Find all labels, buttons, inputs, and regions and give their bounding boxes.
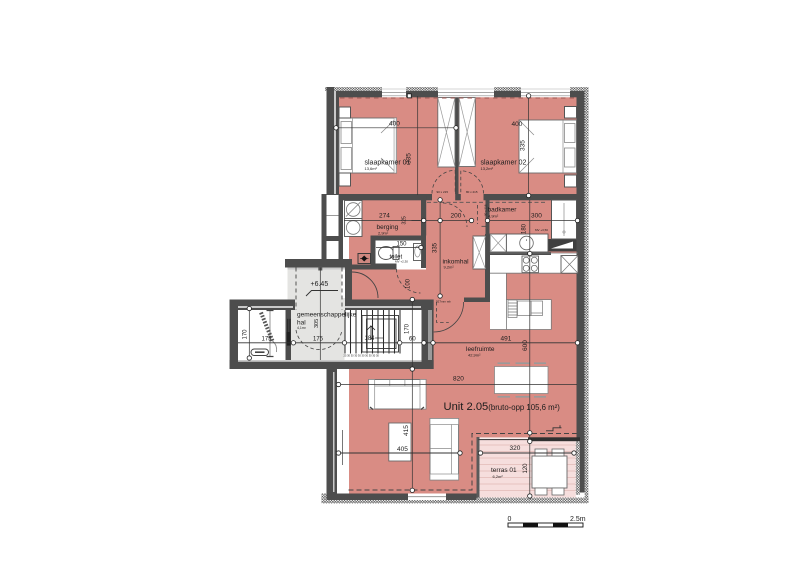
svg-text:25 30 30 30 30 30 30 30 30 30: 25 30 30 30 30 30 30 30 30 30 (344, 354, 380, 358)
svg-text:175: 175 (262, 337, 273, 343)
svg-text:+6.45: +6.45 (311, 281, 329, 288)
svg-text:335: 335 (520, 140, 527, 151)
svg-text:2,9m²: 2,9m² (378, 231, 389, 236)
svg-text:170: 170 (405, 323, 411, 334)
svg-text:274: 274 (379, 213, 390, 220)
svg-text:305: 305 (314, 319, 320, 328)
svg-text:13,6m²: 13,6m² (365, 166, 378, 171)
svg-text:terras 01: terras 01 (491, 467, 517, 474)
svg-text:150: 150 (397, 242, 408, 248)
svg-text:170: 170 (243, 329, 249, 340)
svg-text:6,2m²: 6,2m² (493, 474, 504, 479)
svg-text:335: 335 (406, 153, 413, 164)
svg-text:400: 400 (512, 121, 523, 128)
svg-text:gemeenschappelijke: gemeenschappelijke (297, 312, 357, 319)
svg-text:335: 335 (433, 242, 439, 253)
svg-text:2.5m: 2.5m (570, 516, 586, 523)
svg-text:9,2m²: 9,2m² (444, 265, 455, 270)
svg-text:13,2m²: 13,2m² (481, 166, 494, 171)
svg-text:415: 415 (403, 425, 410, 436)
svg-text:120: 120 (523, 463, 529, 474)
svg-text:405: 405 (397, 446, 408, 453)
svg-text:325: 325 (402, 216, 408, 225)
svg-text:60: 60 (409, 337, 416, 343)
svg-text:80 x 215: 80 x 215 (466, 190, 478, 194)
svg-text:100: 100 (406, 278, 412, 289)
svg-text:491: 491 (501, 336, 512, 343)
svg-text:175: 175 (313, 337, 324, 343)
svg-text:300: 300 (531, 213, 542, 220)
svg-text:180: 180 (522, 223, 528, 234)
svg-text:600: 600 (522, 340, 529, 351)
svg-text:4,9m²: 4,9m² (488, 214, 499, 219)
svg-text:400: 400 (389, 121, 400, 128)
svg-text:0: 0 (508, 516, 512, 523)
svg-text:Unit 2.05(bruto-opp 105,6 m²): Unit 2.05(bruto-opp 105,6 m²) (444, 401, 561, 413)
svg-text:200: 200 (451, 213, 462, 220)
svg-text:badkamer: badkamer (488, 207, 518, 214)
svg-text:90 x 215: 90 x 215 (437, 190, 449, 194)
svg-text:820: 820 (453, 376, 464, 383)
svg-text:MV +2,30: MV +2,30 (395, 260, 408, 264)
svg-text:320: 320 (510, 445, 521, 452)
svg-text:4,1m²: 4,1m² (297, 326, 307, 330)
svg-text:927mm wb: 927mm wb (436, 300, 451, 304)
svg-text:MV +3,50: MV +3,50 (535, 228, 548, 232)
svg-text:42,9m²: 42,9m² (468, 353, 481, 358)
svg-text:184: 184 (365, 336, 376, 342)
